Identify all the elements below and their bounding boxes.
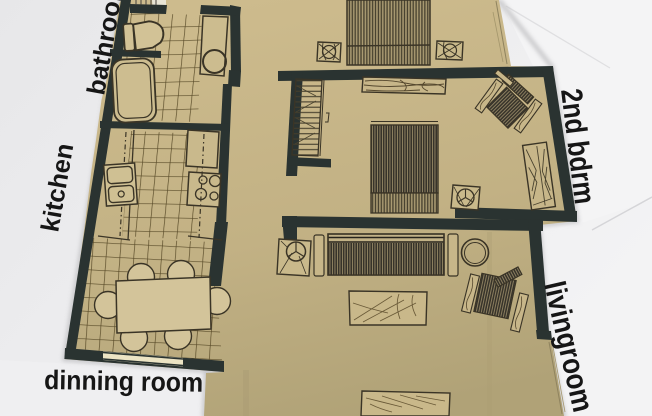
svg-text:dinning room: dinning room	[44, 365, 203, 398]
